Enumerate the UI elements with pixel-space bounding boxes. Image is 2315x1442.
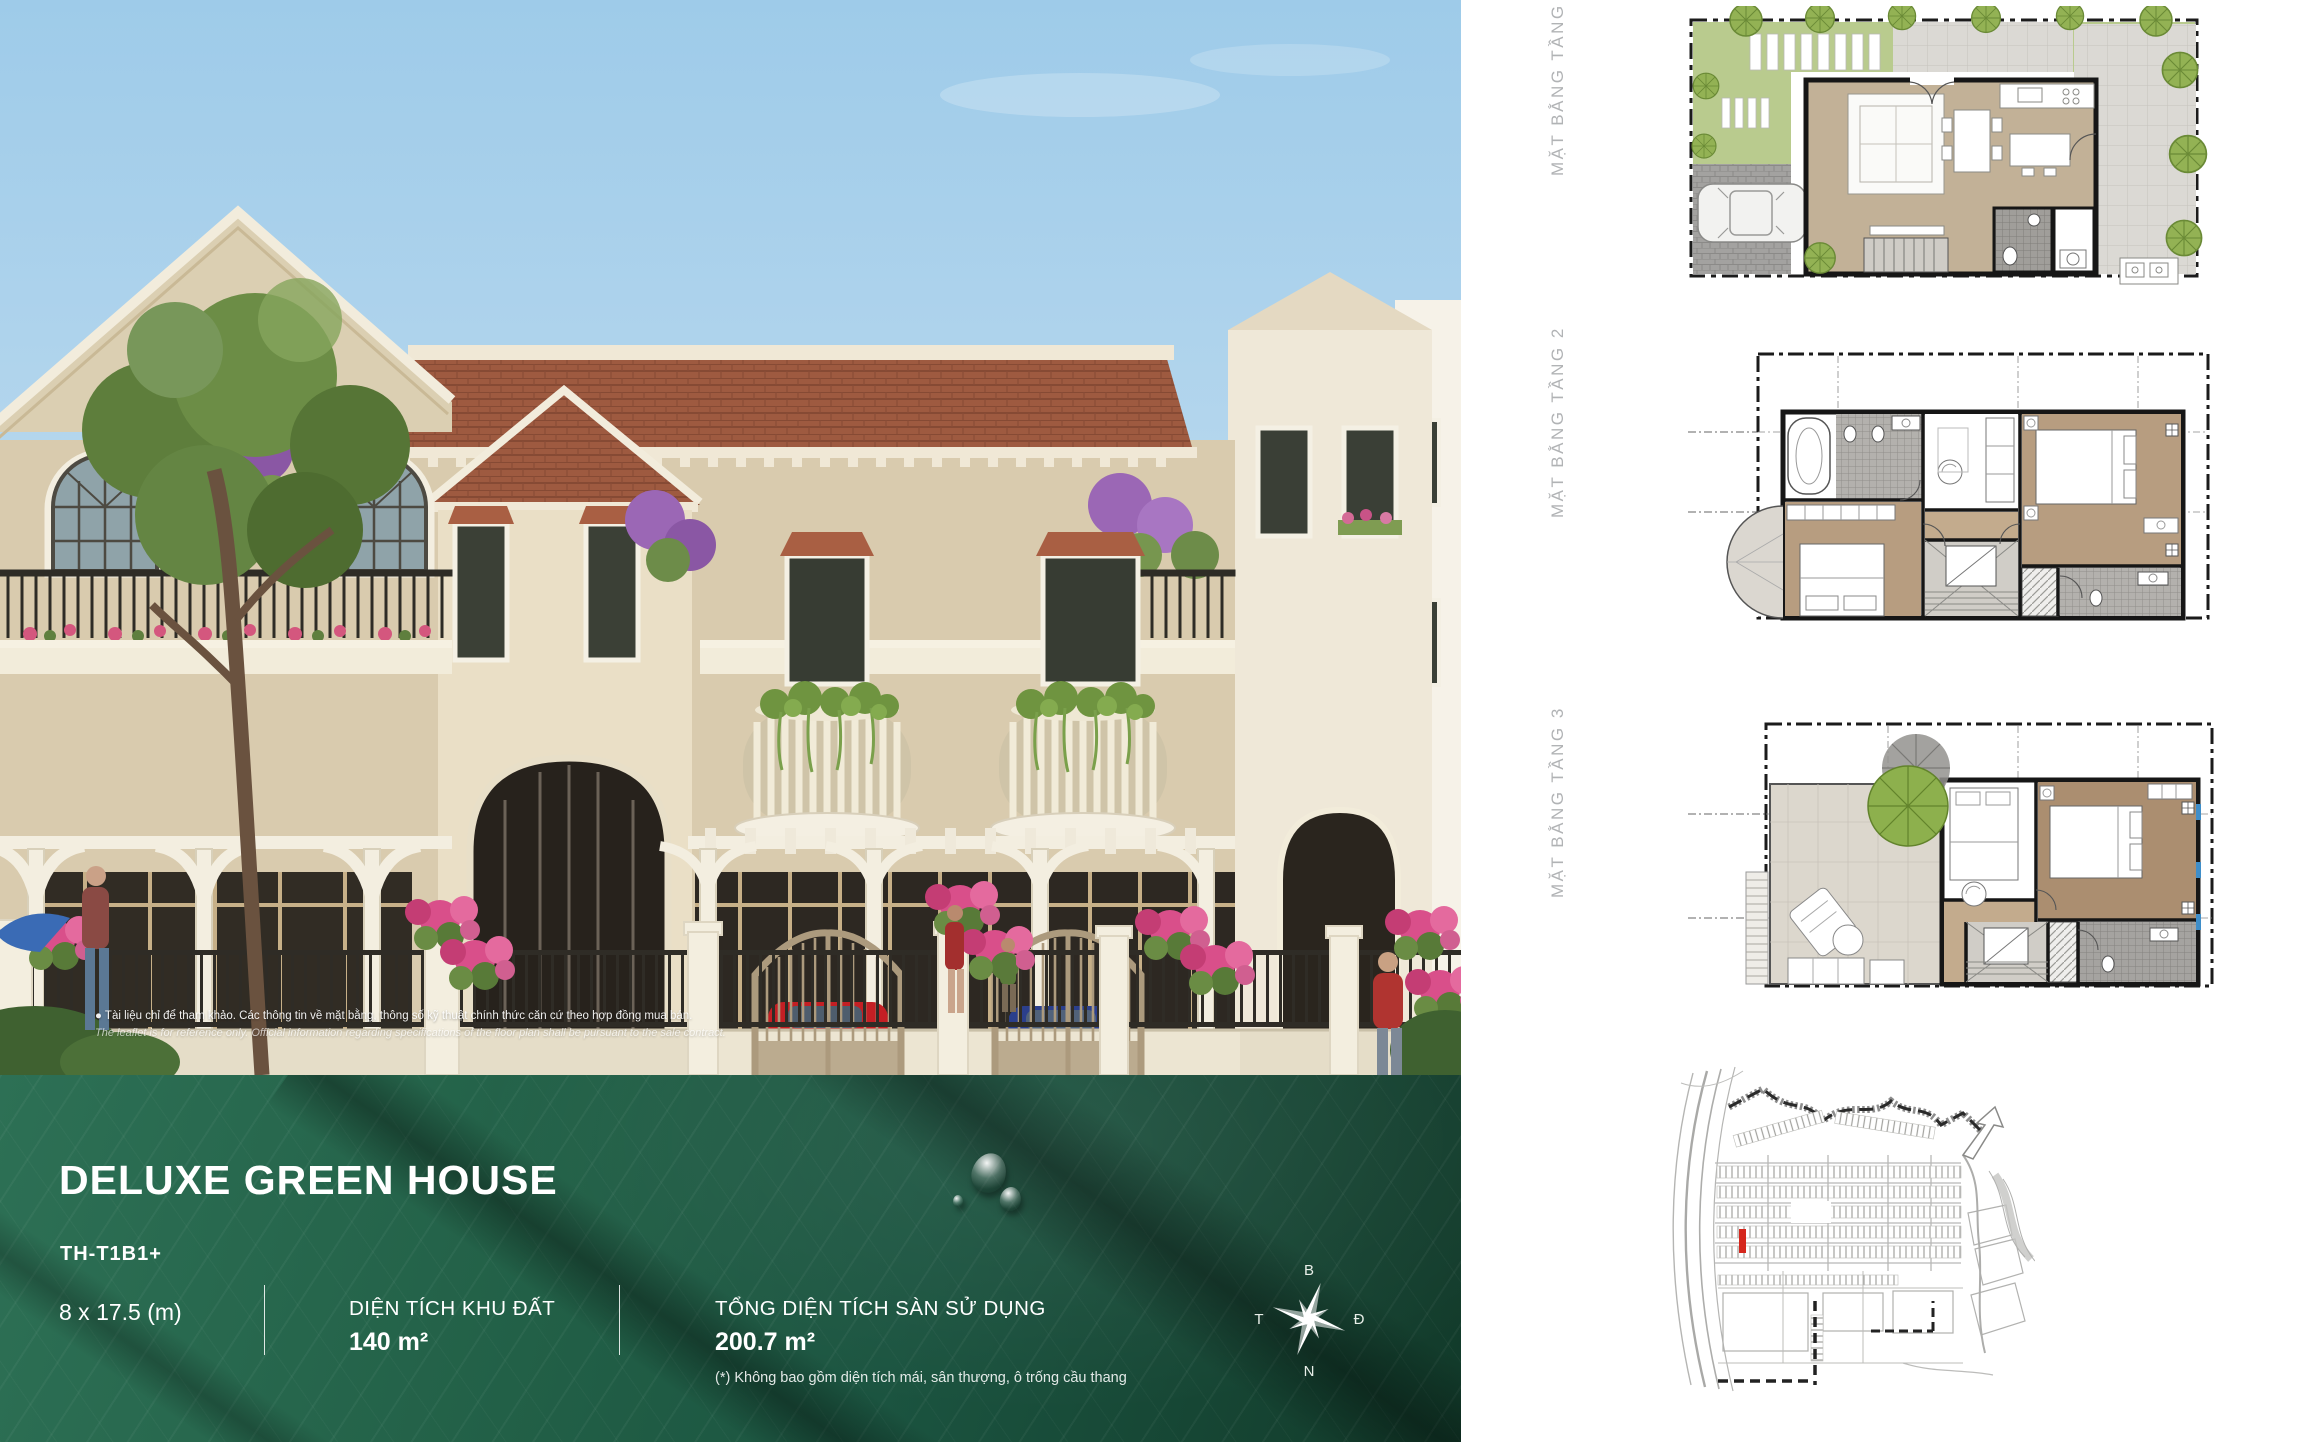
compass-icon: B Đ N T [1247,1257,1371,1381]
floor-plan-3 [1688,722,2250,992]
compass-south-label: N [1304,1363,1315,1380]
photo-disclaimer-vi: ● Tài liệu chỉ để tham khảo. Các thông t… [95,1008,1415,1025]
land-area-value: 140 m² [349,1328,555,1357]
land-area-block: DIỆN TÍCH KHU ĐẤT 140 m² [349,1297,555,1357]
floor-area-value: 200.7 m² [715,1328,1127,1357]
photo-disclaimer: ● Tài liệu chỉ để tham khảo. Các thông t… [95,1008,1415,1042]
floor-plan-3-label: MẶT BẰNG TẦNG 3 [1548,726,1580,898]
lot-dimensions: 8 x 17.5 (m) [59,1299,182,1326]
unit-location-marker [1739,1229,1746,1253]
floor-plan-1-label: MẶT BẰNG TẦNG 1 [1548,4,1580,176]
person-child [1000,938,1016,1012]
unit-code: TH-T1B1+ [60,1243,162,1266]
house-photo [0,0,1461,1075]
floor-area-block: TỔNG DIỆN TÍCH SÀN SỬ DỤNG 200.7 m² (*) … [715,1297,1127,1386]
water-droplet [953,1195,963,1207]
site-map [1663,1063,2035,1395]
compass-north-label: B [1304,1262,1314,1279]
floor-plan-2 [1688,348,2250,624]
divider [264,1285,265,1355]
compass-east-label: Đ [1354,1311,1365,1328]
brochure-page: ● Tài liệu chỉ để tham khảo. Các thông t… [0,0,2315,1442]
land-area-label: DIỆN TÍCH KHU ĐẤT [349,1297,555,1321]
floor-area-label: TỔNG DIỆN TÍCH SÀN SỬ DỤNG [715,1297,1127,1321]
floor-plan-1 [1688,6,2250,292]
photo-disclaimer-en: The leaflet is for reference only. Offic… [95,1025,1415,1042]
car-plan-icon [1698,184,1806,242]
spec-banner: DELUXE GREEN HOUSE TH-T1B1+ 8 x 17.5 (m)… [0,1075,1461,1442]
floor-area-note: (*) Không bao gồm diện tích mái, sân thư… [715,1370,1127,1386]
product-title: DELUXE GREEN HOUSE [59,1157,558,1204]
compass-west-label: T [1254,1311,1263,1328]
divider [619,1285,620,1355]
floor-plan-2-label: MẶT BẰNG TẦNG 2 [1548,346,1580,518]
